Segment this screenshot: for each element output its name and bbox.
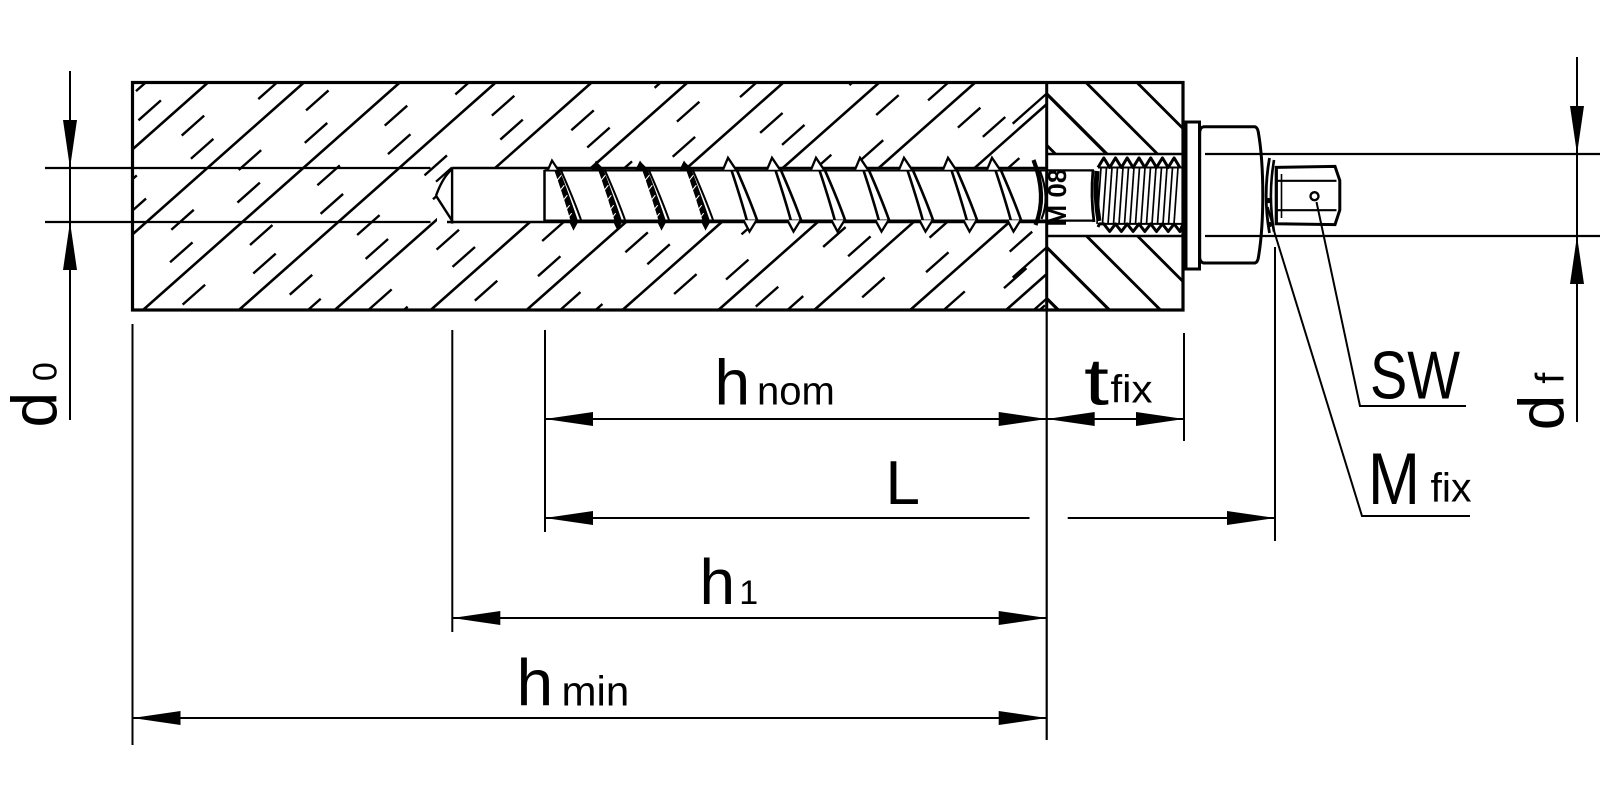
svg-text:min: min bbox=[562, 668, 630, 715]
svg-text:M: M bbox=[1368, 439, 1420, 520]
svg-text:h: h bbox=[700, 546, 736, 618]
svg-text:fix: fix bbox=[1431, 465, 1473, 511]
svg-text:h: h bbox=[715, 347, 751, 419]
svg-text:1: 1 bbox=[739, 574, 758, 612]
svg-text:fix: fix bbox=[1111, 369, 1154, 412]
svg-text:0: 0 bbox=[26, 362, 64, 381]
svg-text:L: L bbox=[886, 449, 920, 518]
svg-text:d: d bbox=[0, 392, 70, 428]
svg-text:h: h bbox=[517, 646, 554, 720]
svg-text:M 08: M 08 bbox=[1042, 169, 1072, 227]
svg-text:d: d bbox=[1506, 395, 1578, 431]
svg-text:t: t bbox=[1084, 345, 1109, 419]
svg-text:nom: nom bbox=[757, 370, 835, 414]
svg-text:SW: SW bbox=[1370, 338, 1460, 414]
svg-text:f: f bbox=[1529, 372, 1573, 384]
